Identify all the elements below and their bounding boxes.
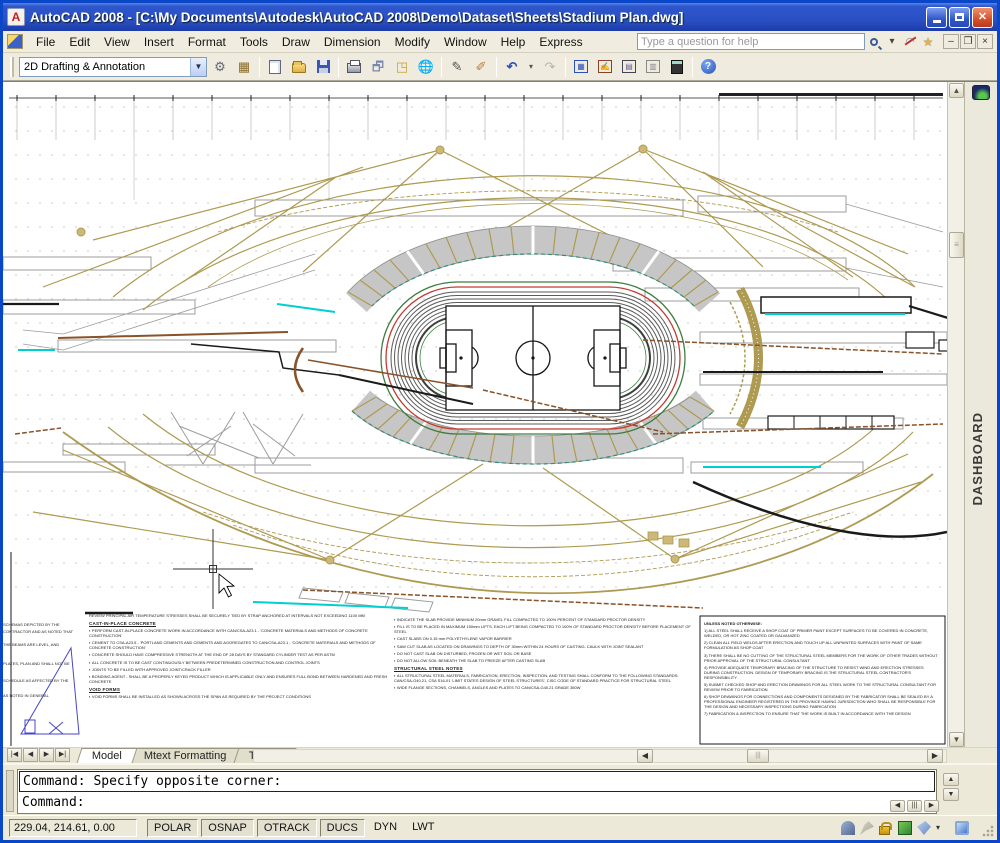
- redo-icon[interactable]: ↷: [539, 56, 561, 78]
- command-history-line: Command: Specify opposite corner:: [19, 771, 935, 792]
- minimize-button[interactable]: [926, 7, 947, 28]
- command-window-grip[interactable]: [6, 770, 14, 812]
- standard-toolbar: 2D Drafting & Annotation ▼ ⚙ ▦ 🗗 ◳ 🌐 ✎ ✐…: [3, 53, 997, 81]
- undo-icon[interactable]: ↶: [501, 56, 523, 78]
- status-bar: 229.04, 214.61, 0.00 POLAR OSNAP OTRACK …: [3, 815, 997, 840]
- toggle-otrack[interactable]: OTRACK: [257, 819, 317, 837]
- command-text-area[interactable]: Command: Specify opposite corner: Comman…: [17, 769, 937, 814]
- coordinates-display[interactable]: 229.04, 214.61, 0.00: [9, 819, 137, 837]
- tab-last-icon[interactable]: ▶|: [55, 748, 70, 762]
- document-icon[interactable]: [7, 34, 23, 49]
- plot-icon[interactable]: [343, 56, 365, 78]
- designcenter-icon[interactable]: ▤: [618, 56, 640, 78]
- undo-dropdown-icon[interactable]: ▾: [525, 56, 537, 78]
- chevron-down-icon[interactable]: ▼: [190, 58, 206, 76]
- tab-first-icon[interactable]: |◀: [7, 748, 22, 762]
- command-scroll-right-icon[interactable]: ▶: [924, 800, 939, 812]
- communication-center-icon[interactable]: ◠: [901, 33, 919, 50]
- doc-close-button[interactable]: ×: [977, 34, 993, 49]
- title-bar[interactable]: A AutoCAD 2008 - [C:\My Documents\Autode…: [3, 3, 997, 31]
- toolbar-lock-icon[interactable]: [879, 826, 890, 835]
- soccer-pitch: [440, 306, 626, 410]
- menu-tools[interactable]: Tools: [233, 33, 275, 51]
- menu-modify[interactable]: Modify: [388, 33, 437, 51]
- markup-set-manager-icon[interactable]: ✍: [594, 56, 616, 78]
- window-title: AutoCAD 2008 - [C:\My Documents\Autodesk…: [30, 10, 926, 25]
- menu-format[interactable]: Format: [181, 33, 233, 51]
- workspace-settings-icon[interactable]: ⚙: [209, 56, 231, 78]
- workspace-combobox[interactable]: 2D Drafting & Annotation ▼: [19, 57, 207, 77]
- horizontal-scrollbar[interactable]: [253, 749, 947, 763]
- close-button[interactable]: ✕: [972, 7, 993, 28]
- stadium-plan-drawing: [3, 82, 947, 748]
- plot-preview-icon[interactable]: 🗗: [367, 56, 389, 78]
- triangle-detail: [21, 648, 79, 734]
- command-vertical-scrollbar[interactable]: ▲ ▼: [943, 773, 959, 803]
- autocad-app-icon[interactable]: A: [7, 8, 25, 26]
- autocad-window: A AutoCAD 2008 - [C:\My Documents\Autode…: [0, 0, 1000, 843]
- command-scroll-up-icon[interactable]: ▲: [943, 773, 959, 786]
- horizontal-scroll-thumb[interactable]: |||: [747, 749, 769, 763]
- block-editor-icon[interactable]: ✐: [470, 56, 492, 78]
- help-question-input[interactable]: [637, 33, 865, 50]
- toggle-lwt[interactable]: LWT: [406, 819, 440, 837]
- communication-center-status-icon[interactable]: [841, 821, 855, 835]
- menu-view[interactable]: View: [97, 33, 137, 51]
- toolbar-grip[interactable]: [10, 57, 14, 77]
- annotation-scale-icon[interactable]: [860, 821, 874, 835]
- menu-window[interactable]: Window: [437, 33, 494, 51]
- dashboard-label[interactable]: DASHBOARD: [970, 412, 985, 506]
- command-input-line[interactable]: Command:: [18, 793, 936, 812]
- open-icon[interactable]: [288, 56, 310, 78]
- clean-screen-icon[interactable]: [955, 821, 969, 835]
- menu-file[interactable]: File: [29, 33, 62, 51]
- command-window: Command: Specify opposite corner: Comman…: [3, 763, 997, 815]
- maximize-button[interactable]: [949, 7, 970, 28]
- publish-icon[interactable]: ◳: [391, 56, 413, 78]
- favorites-star-icon[interactable]: ★: [919, 33, 937, 50]
- quickcalc-icon[interactable]: [666, 56, 688, 78]
- sheet-set-manager-icon[interactable]: ▦: [570, 56, 592, 78]
- command-scroll-thumb[interactable]: |||: [907, 800, 922, 812]
- command-horizontal-scrollbar[interactable]: ◀ ||| ▶: [890, 800, 939, 812]
- 3d-dwf-icon[interactable]: 🌐: [415, 56, 437, 78]
- drawing-canvas[interactable]: SCHEMAS DEPICTED BY THE CONTRACTOR AND A…: [3, 82, 947, 748]
- search-icon[interactable]: [865, 33, 883, 50]
- menu-insert[interactable]: Insert: [137, 33, 181, 51]
- qnew-icon[interactable]: [264, 56, 286, 78]
- help-icon[interactable]: ?: [697, 56, 719, 78]
- vertical-scroll-thumb[interactable]: [949, 232, 964, 258]
- tool-palettes-icon[interactable]: ▥: [642, 56, 664, 78]
- menu-dimension[interactable]: Dimension: [317, 33, 388, 51]
- command-scroll-down-icon[interactable]: ▼: [943, 788, 959, 801]
- doc-restore-button[interactable]: ❐: [960, 34, 976, 49]
- scroll-right-icon[interactable]: ▶: [927, 749, 943, 763]
- scroll-up-icon[interactable]: ▲: [949, 83, 964, 98]
- layout-tab-row: |◀ ◀ ▶ ▶| Model Mtext Formatting Tables …: [3, 747, 997, 763]
- command-scroll-left-icon[interactable]: ◀: [890, 800, 905, 812]
- tab-previous-icon[interactable]: ◀: [23, 748, 38, 762]
- match-properties-icon[interactable]: ✎: [446, 56, 468, 78]
- drawing-region: SCHEMAS DEPICTED BY THE CONTRACTOR AND A…: [3, 81, 997, 747]
- menu-express[interactable]: Express: [532, 33, 589, 51]
- tab-mtext-formatting[interactable]: Mtext Formatting: [129, 748, 242, 763]
- dashboard-panel-collapsed[interactable]: DASHBOARD: [964, 82, 997, 748]
- toggle-ducs[interactable]: DUCS: [320, 819, 365, 837]
- menu-draw[interactable]: Draw: [275, 33, 317, 51]
- workspace-label: 2D Drafting & Annotation: [24, 61, 145, 73]
- toggle-dyn[interactable]: DYN: [368, 819, 403, 837]
- status-menu-arrow-icon[interactable]: ▾: [936, 821, 950, 835]
- dashboard-icon[interactable]: [972, 85, 990, 100]
- vertical-scrollbar[interactable]: ▲ ▼: [947, 82, 964, 748]
- menu-bar: File Edit View Insert Format Tools Draw …: [3, 31, 997, 53]
- toggle-osnap[interactable]: OSNAP: [201, 819, 254, 837]
- tab-model[interactable]: Model: [77, 748, 138, 763]
- scroll-left-icon[interactable]: ◀: [637, 749, 653, 763]
- toggle-polar[interactable]: POLAR: [147, 819, 198, 837]
- resize-grip[interactable]: [981, 824, 995, 838]
- menu-edit[interactable]: Edit: [62, 33, 97, 51]
- menu-help[interactable]: Help: [494, 33, 533, 51]
- block-update-icon[interactable]: [898, 821, 912, 835]
- doc-minimize-button[interactable]: –: [943, 34, 959, 49]
- search-dropdown-icon[interactable]: ▾: [883, 33, 901, 50]
- save-icon[interactable]: [312, 56, 334, 78]
- scroll-down-icon[interactable]: ▼: [949, 732, 964, 747]
- annotation-tag-icon[interactable]: [917, 821, 931, 835]
- tab-next-icon[interactable]: ▶: [39, 748, 54, 762]
- my-workspace-icon[interactable]: ▦: [233, 56, 255, 78]
